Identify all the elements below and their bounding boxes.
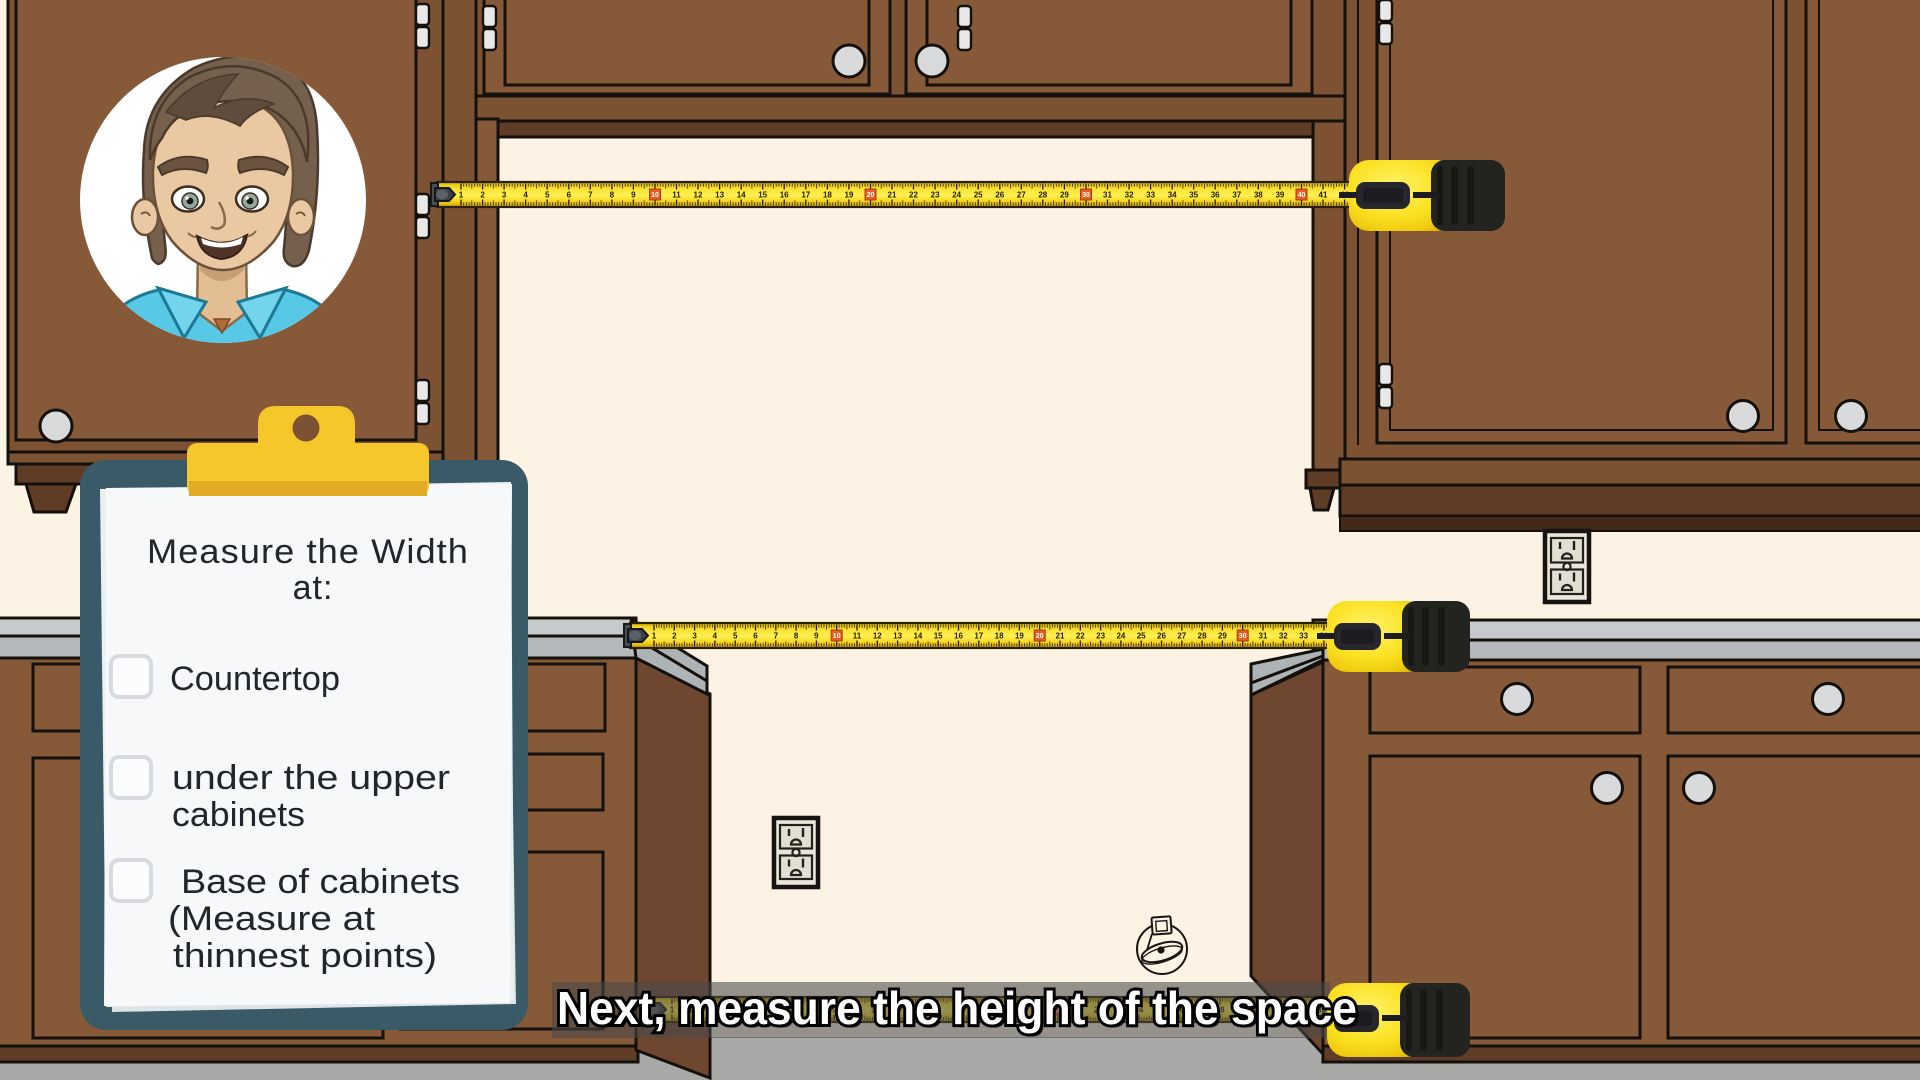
svg-text:38: 38 (1254, 191, 1263, 200)
svg-text:20: 20 (1036, 633, 1044, 640)
svg-text:26: 26 (995, 191, 1004, 200)
svg-text:7: 7 (588, 191, 593, 200)
svg-text:24: 24 (1116, 632, 1125, 641)
svg-text:10: 10 (833, 633, 841, 640)
svg-text:22: 22 (909, 191, 918, 200)
svg-text:28: 28 (1198, 632, 1207, 641)
svg-text:11: 11 (853, 632, 862, 641)
svg-text:under the upper: under the upper (172, 759, 450, 797)
svg-text:2: 2 (672, 632, 677, 641)
svg-text:4: 4 (523, 191, 528, 200)
svg-text:31: 31 (1259, 632, 1268, 641)
svg-text:25: 25 (974, 191, 983, 200)
svg-text:39: 39 (1275, 191, 1284, 200)
svg-text:18: 18 (995, 632, 1004, 641)
svg-text:Base of cabinets: Base of cabinets (181, 863, 460, 901)
svg-text:27: 27 (1017, 191, 1026, 200)
svg-text:41: 41 (1319, 191, 1328, 200)
svg-text:23: 23 (1096, 632, 1105, 641)
svg-text:8: 8 (610, 191, 615, 200)
svg-text:17: 17 (974, 632, 983, 641)
svg-text:3: 3 (502, 191, 507, 200)
svg-text:Countertop: Countertop (170, 660, 340, 698)
svg-text:34: 34 (1168, 191, 1177, 200)
svg-text:5: 5 (545, 191, 550, 200)
svg-text:6: 6 (753, 632, 758, 641)
svg-text:12: 12 (694, 191, 703, 200)
svg-text:36: 36 (1211, 191, 1220, 200)
svg-text:8: 8 (794, 632, 799, 641)
svg-text:18: 18 (823, 191, 832, 200)
svg-text:16: 16 (954, 632, 963, 641)
svg-text:29: 29 (1218, 632, 1227, 641)
svg-text:20: 20 (867, 192, 875, 199)
svg-text:14: 14 (913, 632, 922, 641)
svg-text:30: 30 (1239, 633, 1247, 640)
svg-text:7: 7 (774, 632, 779, 641)
svg-text:19: 19 (1015, 632, 1024, 641)
svg-text:1: 1 (459, 191, 464, 200)
svg-text:31: 31 (1103, 191, 1112, 200)
svg-text:17: 17 (801, 191, 810, 200)
svg-text:3: 3 (692, 632, 697, 641)
svg-text:32: 32 (1125, 191, 1134, 200)
svg-text:40: 40 (1298, 192, 1306, 199)
svg-text:35: 35 (1189, 191, 1198, 200)
svg-text:19: 19 (844, 191, 853, 200)
svg-text:33: 33 (1146, 191, 1155, 200)
svg-text:4: 4 (713, 632, 718, 641)
svg-text:21: 21 (1056, 632, 1065, 641)
svg-text:10: 10 (651, 192, 659, 199)
svg-text:16: 16 (780, 191, 789, 200)
svg-text:cabinets: cabinets (172, 796, 305, 834)
svg-text:30: 30 (1082, 192, 1090, 199)
svg-text:29: 29 (1060, 191, 1069, 200)
svg-text:24: 24 (952, 191, 961, 200)
svg-text:at:: at: (293, 569, 334, 607)
svg-text:28: 28 (1038, 191, 1047, 200)
svg-text:23: 23 (931, 191, 940, 200)
svg-text:15: 15 (934, 632, 943, 641)
svg-text:37: 37 (1232, 191, 1241, 200)
svg-text:5: 5 (733, 632, 738, 641)
svg-text:(Measure at: (Measure at (168, 900, 376, 938)
svg-text:2: 2 (480, 191, 485, 200)
svg-text:9: 9 (814, 632, 819, 641)
svg-text:27: 27 (1177, 632, 1186, 641)
svg-text:6: 6 (567, 191, 572, 200)
svg-text:21: 21 (888, 191, 897, 200)
svg-text:13: 13 (893, 632, 902, 641)
svg-text:1: 1 (652, 632, 657, 641)
svg-text:22: 22 (1076, 632, 1085, 641)
svg-text:13: 13 (715, 191, 724, 200)
svg-text:14: 14 (737, 191, 746, 200)
svg-text:11: 11 (672, 191, 681, 200)
svg-text:32: 32 (1279, 632, 1288, 641)
svg-text:thinnest points): thinnest points) (173, 937, 437, 975)
svg-text:12: 12 (873, 632, 882, 641)
svg-text:Measure the Width: Measure the Width (147, 533, 469, 571)
svg-text:15: 15 (758, 191, 767, 200)
svg-text:25: 25 (1137, 632, 1146, 641)
svg-text:9: 9 (631, 191, 636, 200)
svg-text:26: 26 (1157, 632, 1166, 641)
svg-text:Next, measure the height of th: Next, measure the height of the space (557, 982, 1357, 1034)
svg-text:33: 33 (1299, 632, 1308, 641)
